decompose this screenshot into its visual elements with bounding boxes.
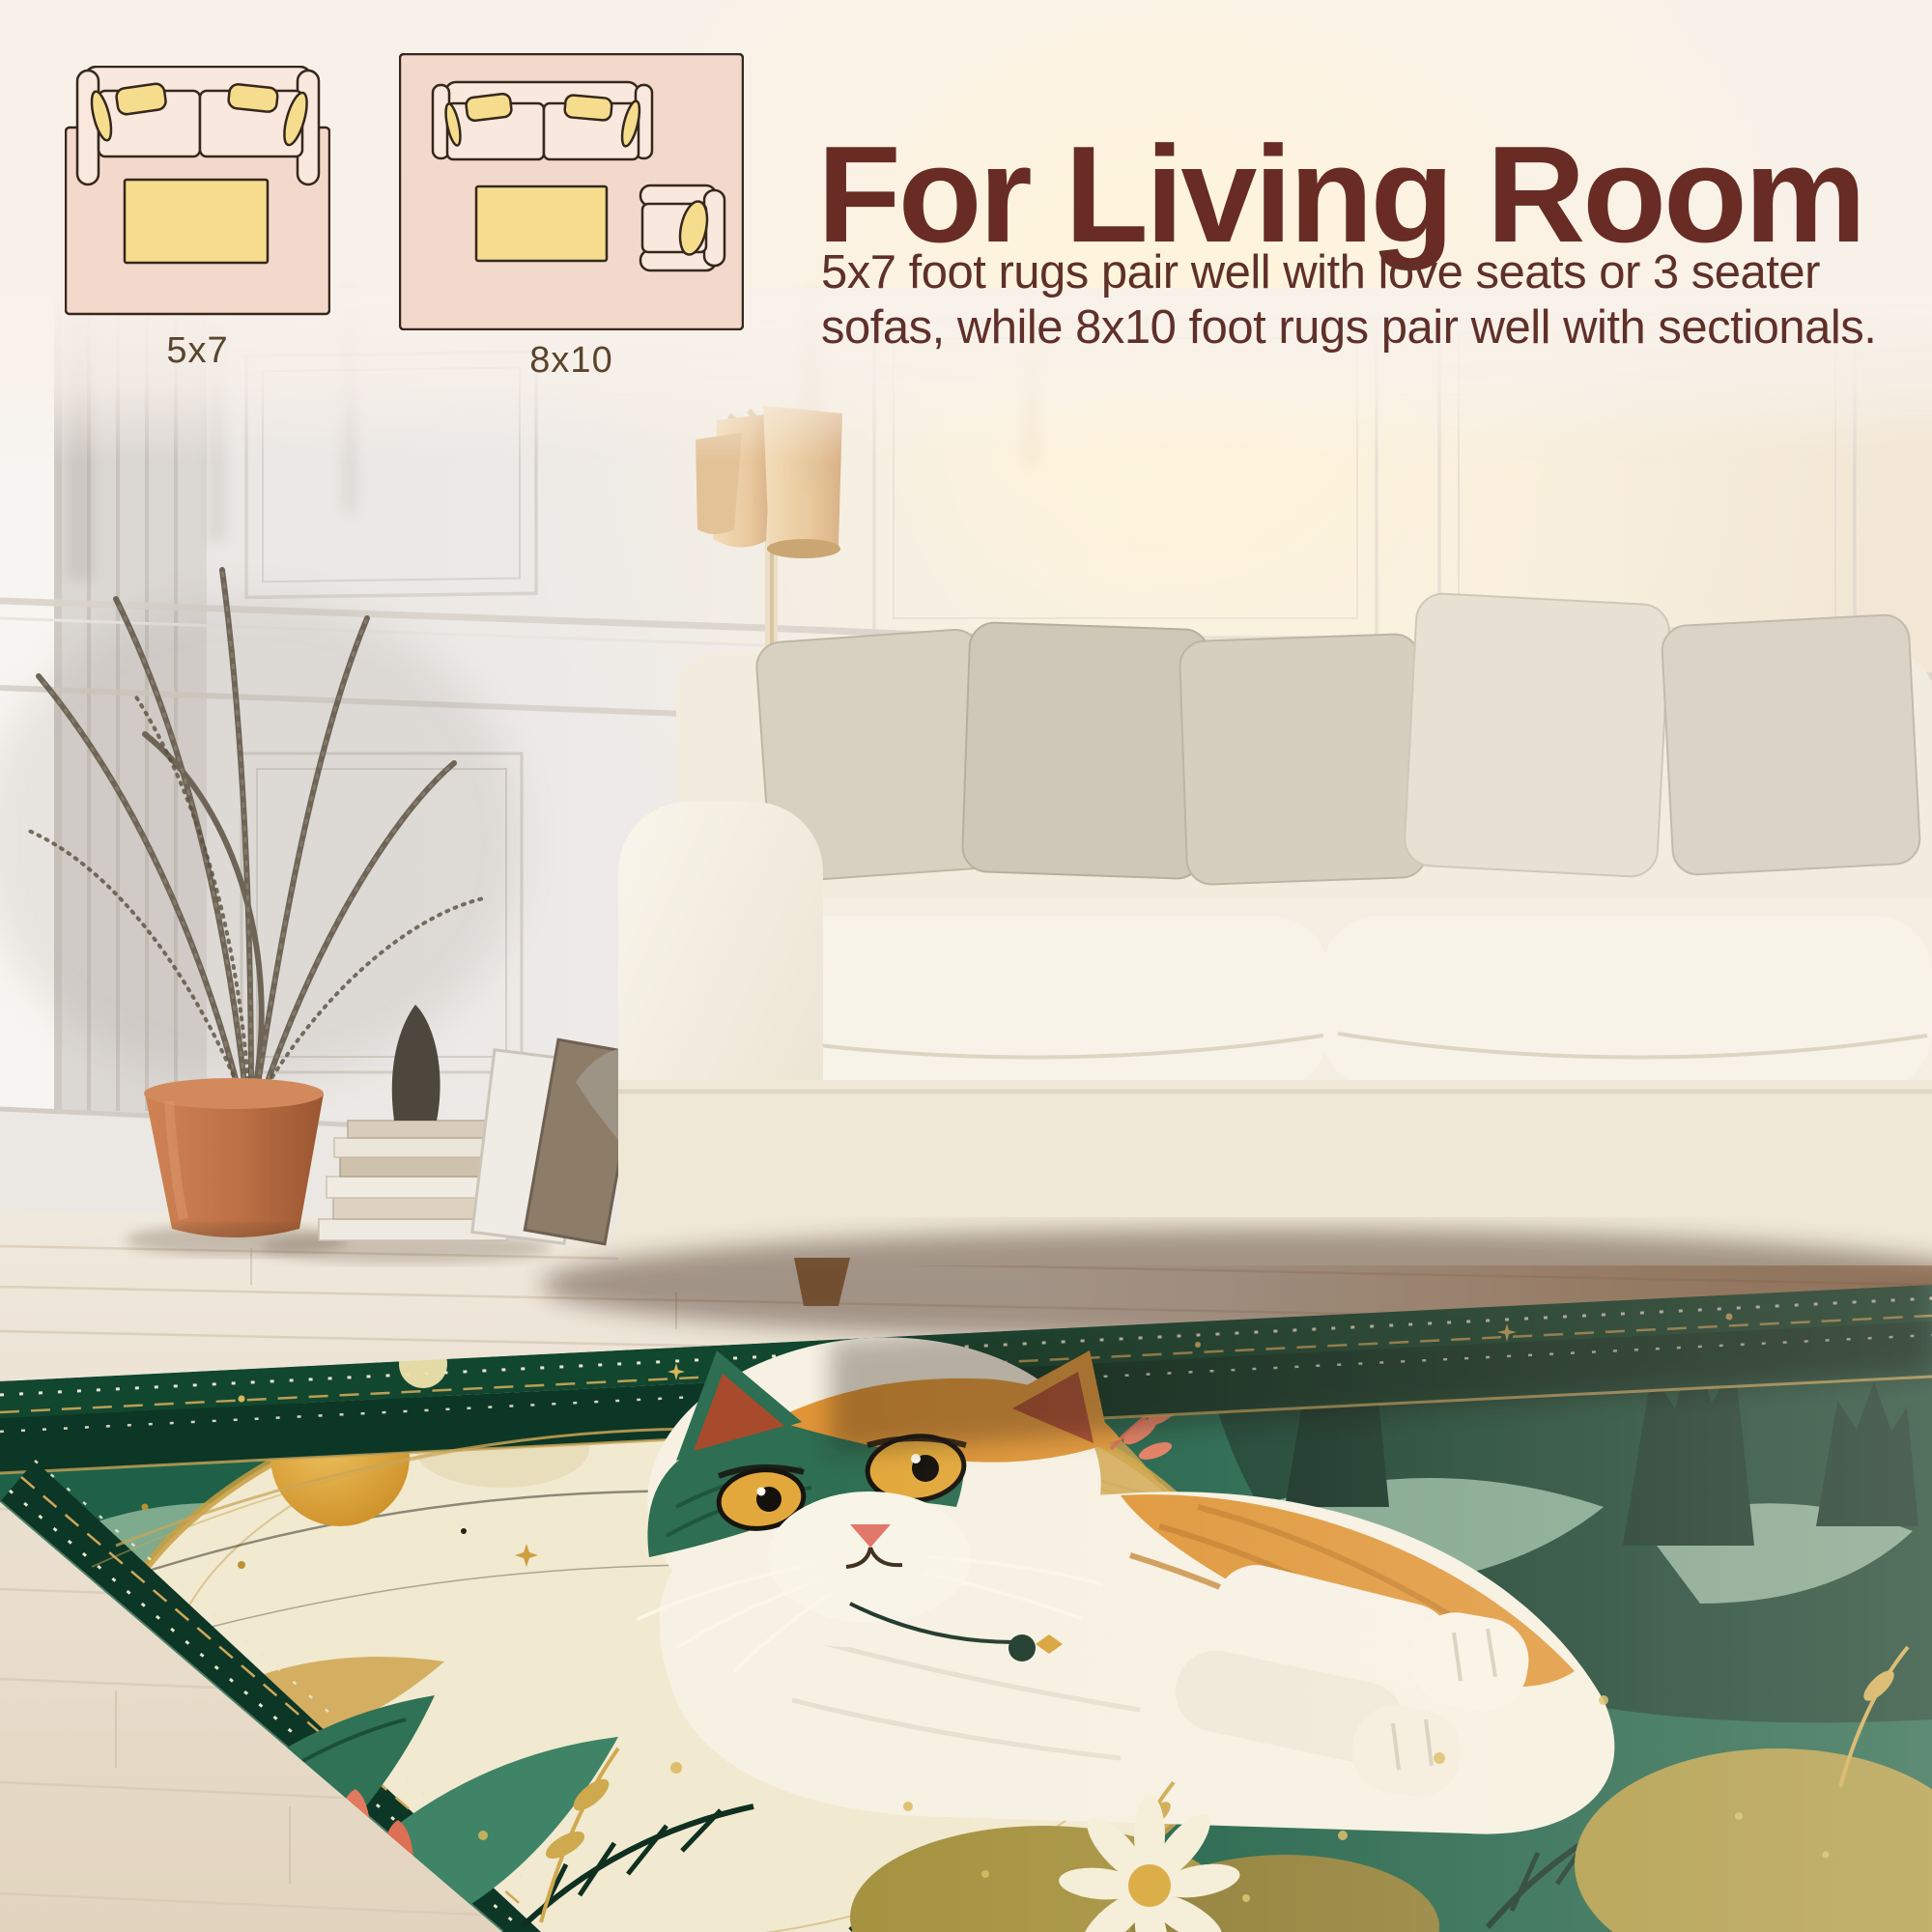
rug-size-diagram-8x10 [399,53,744,330]
coffee-table [125,180,268,263]
throw-pillow [115,83,166,116]
throw-pillows [755,592,1921,885]
rug-size-diagram-5x7 [65,66,330,317]
size-guide-description: 5x7 foot rugs pair well with love seats … [821,245,1918,356]
armchair-top-view [640,185,724,270]
size-label-8x10: 8x10 [399,340,744,382]
throw-pillow [466,93,513,121]
throw-pillow [228,83,278,112]
size-label-5x7: 5x7 [65,330,330,372]
product-image: For Living Room 5x7 foot rugs pair well … [0,0,1932,1932]
coffee-table [476,186,607,261]
diagram-5x7-canvas [65,66,330,317]
diagram-8x10-canvas [399,53,744,330]
white-sofa [541,592,1932,1341]
page-title: For Living Room [817,127,1928,264]
armrest-left [77,71,99,185]
throw-pillow [564,95,612,121]
three-seater-sofa-top-view [433,82,652,159]
